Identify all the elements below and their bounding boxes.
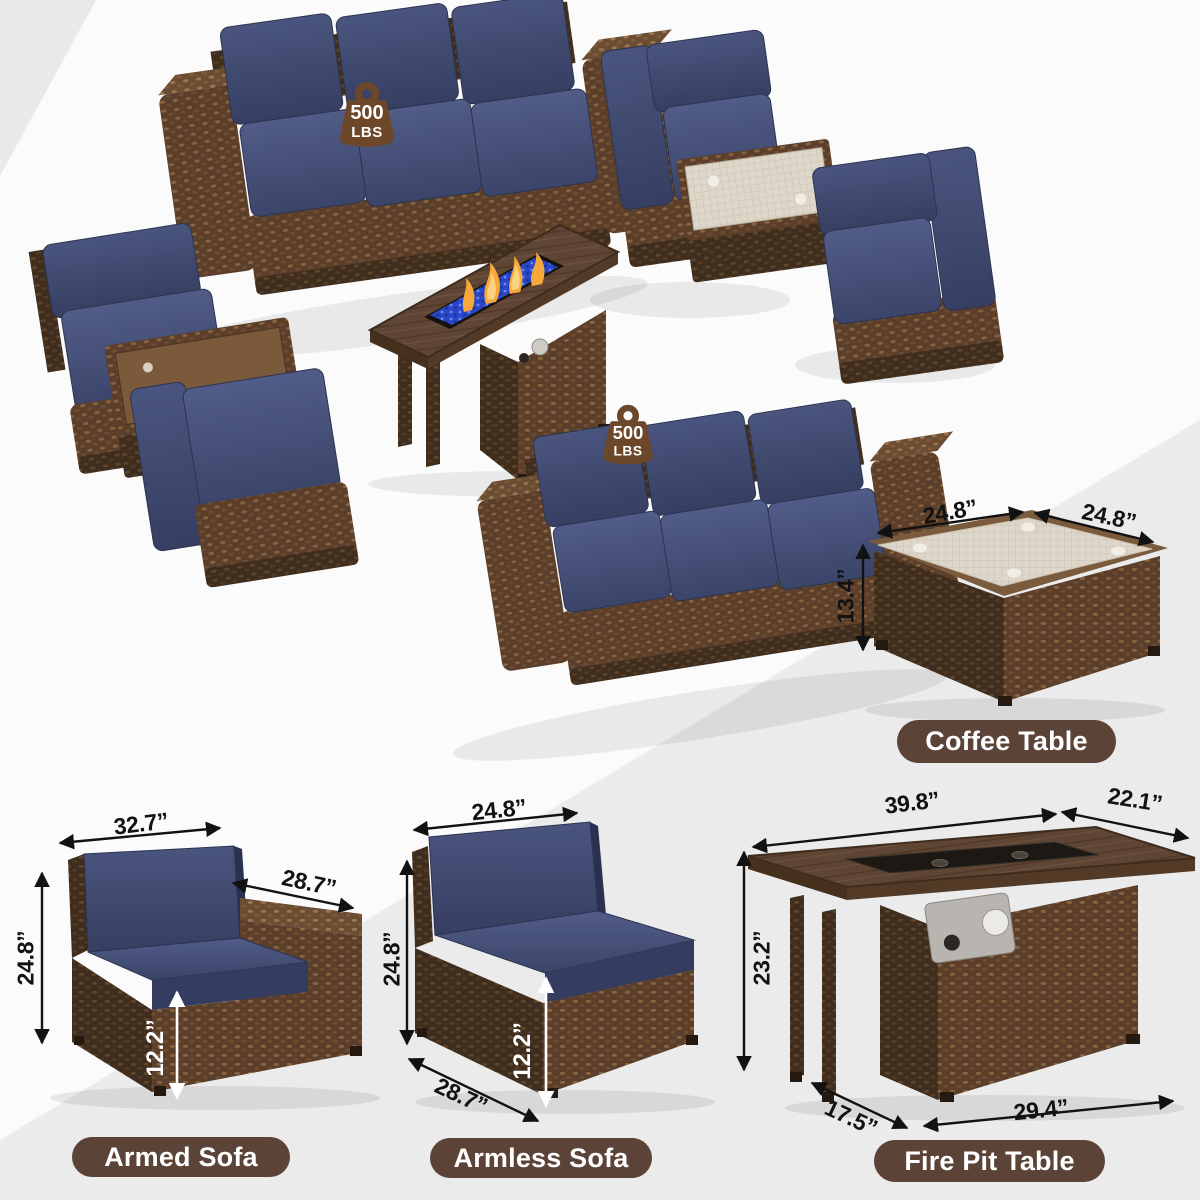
- back-cushion: [84, 846, 240, 952]
- table-leg: [822, 909, 836, 1098]
- corner-sofa-right: [812, 146, 1005, 385]
- armed-sofa-shadow: [50, 1086, 380, 1110]
- coffee-table-height-dim: 13.4”: [833, 569, 860, 624]
- glass-hole: [1021, 523, 1035, 532]
- fire-pit-height-dim: 23.2”: [749, 931, 776, 986]
- coffee-table-shadow: [865, 698, 1165, 722]
- weight-value: 500: [613, 422, 644, 443]
- weight-unit: LBS: [614, 443, 643, 458]
- weight-value: 500: [350, 102, 383, 124]
- burner-cap: [1012, 852, 1028, 859]
- glass-hole: [1007, 569, 1021, 578]
- igniter-button: [519, 353, 529, 363]
- fire-pit-table-label-pill: Fire Pit Table: [874, 1140, 1105, 1182]
- table-leg: [790, 895, 804, 1078]
- armless-sofa-width-dim: 24.8”: [470, 794, 527, 827]
- weight-unit: LBS: [351, 124, 383, 141]
- armed-sofa-height-dim: 24.8”: [13, 931, 40, 986]
- armless-sofa-height-dim: 24.8”: [379, 932, 406, 987]
- coffee-table-label-pill: Coffee Table: [897, 720, 1116, 763]
- armed-sofa-seat-height-dim: 12.2”: [142, 1019, 170, 1076]
- armless-sofa-label-pill: Armless Sofa: [430, 1138, 652, 1178]
- burner-cap: [932, 860, 948, 867]
- armed-sofa-label-pill: Armed Sofa: [72, 1137, 290, 1177]
- chair-shadow: [590, 282, 790, 318]
- glass-hole: [913, 544, 927, 553]
- patio-furniture-dimensions-infographic: 500 LBS 500 LBS: [0, 0, 1200, 1200]
- gas-control-panel: [924, 892, 1016, 963]
- fire-pit-base-width-dim: 29.4”: [1012, 1094, 1069, 1127]
- infographic-graphics: 500 LBS 500 LBS: [0, 0, 1200, 1200]
- glass-hole: [1111, 547, 1125, 556]
- gas-knob: [532, 339, 548, 355]
- armless-sofa-seat-height-dim: 12.2”: [509, 1022, 537, 1079]
